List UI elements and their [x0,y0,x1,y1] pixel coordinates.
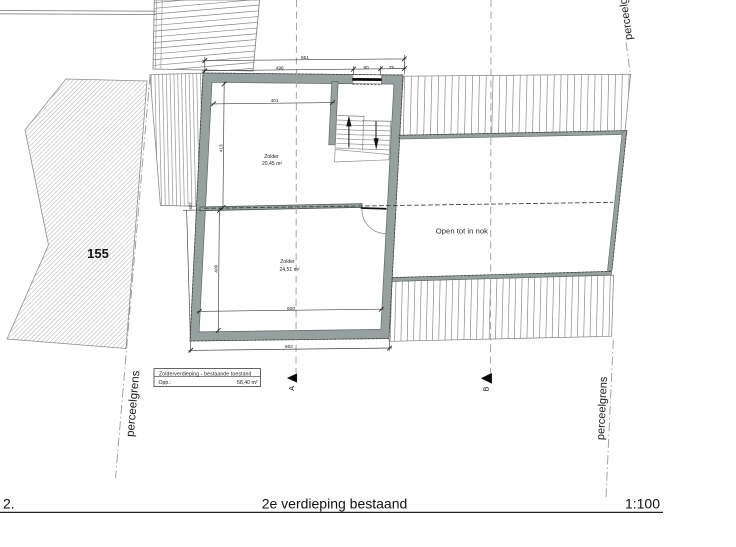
svg-text:2.: 2. [3,496,15,512]
svg-text:20,45 m²: 20,45 m² [262,161,282,167]
svg-text:401: 401 [270,98,278,104]
svg-text:90: 90 [363,65,369,71]
svg-text:2e verdieping bestaand: 2e verdieping bestaand [262,496,408,512]
svg-text:24,51 m²: 24,51 m² [279,267,299,273]
svg-text:perceelgrens: perceelgrens [125,370,143,438]
svg-text:662: 662 [285,344,293,350]
svg-text:B: B [484,386,491,391]
svg-text:496: 496 [276,65,284,71]
svg-text:58,40 m²: 58,40 m² [237,380,258,386]
svg-text:1:100: 1:100 [625,496,660,512]
svg-text:perceelgrens: perceelgrens [595,376,610,441]
svg-text:A: A [289,386,296,391]
svg-text:75: 75 [389,65,395,71]
svg-text:Open tot in nok: Open tot in nok [436,227,488,236]
svg-text:Opp.:: Opp.: [159,380,172,386]
svg-text:perceelgrens: perceelgrens [615,0,636,41]
svg-text:155: 155 [87,246,109,261]
svg-text:413: 413 [218,144,224,152]
svg-text:687: 687 [188,202,193,210]
svg-text:Zolder: Zolder [280,259,295,265]
svg-text:400: 400 [214,264,220,272]
svg-text:Zolder: Zolder [264,154,279,160]
svg-text:661: 661 [301,55,309,61]
svg-text:Zolderverdieping - bestaande t: Zolderverdieping - bestaande toestand [159,371,252,377]
svg-text:600: 600 [287,306,295,312]
